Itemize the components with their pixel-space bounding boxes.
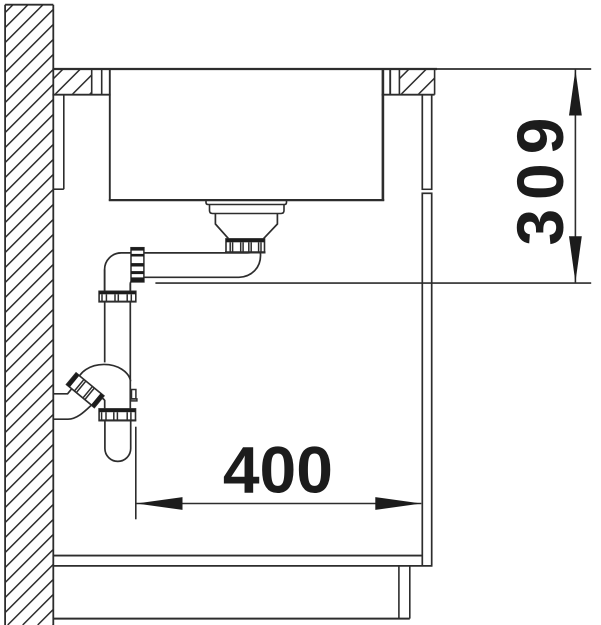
- svg-text:400: 400: [223, 432, 333, 506]
- svg-text:309: 309: [503, 109, 577, 246]
